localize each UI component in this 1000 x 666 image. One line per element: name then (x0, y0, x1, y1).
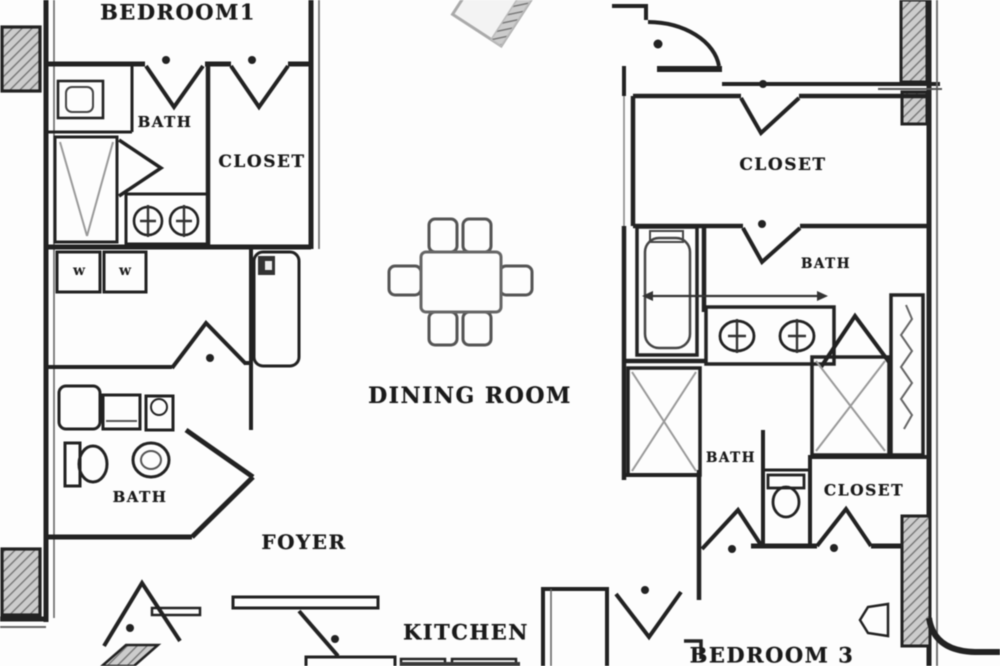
left-unit (0, 0, 319, 666)
shower-glass-marks (816, 361, 885, 451)
bath2-angled-wall-upper (186, 430, 253, 477)
dining-chair (429, 312, 457, 345)
entry-curve-wall (929, 618, 1000, 652)
room-label-closet-lower-right: CLOSET (824, 481, 904, 500)
room-label-bath-right-upper: BATH (801, 256, 851, 272)
floor-plan-linework (0, 0, 1000, 666)
pedestal-sink (133, 443, 169, 477)
dining-chair (463, 219, 491, 252)
toilet-bowl (66, 87, 93, 112)
floor-plan: BEDROOM1 BATH CLOSET DINING ROOM CLOSET … (0, 0, 1000, 666)
room-label-bath-top-left: BATH (138, 113, 193, 131)
entry-wall-stub (612, 6, 646, 20)
dining-set (389, 0, 551, 345)
door-hinge-dot (126, 624, 134, 632)
room-label-closet-top-left: CLOSET (218, 152, 305, 172)
washer-glyph: w (73, 263, 85, 279)
bedroom3-door-swing-left (702, 510, 761, 549)
bath2-cabinet (103, 395, 140, 429)
bath2-north-wall (46, 363, 253, 367)
shower-glass-marks (60, 142, 113, 236)
hatched-wall-right-top (901, 0, 927, 82)
dining-table (421, 252, 501, 312)
vanity-counter (126, 194, 208, 244)
door-hinge-dot (248, 56, 256, 64)
room-label-kitchen: KITCHEN (403, 620, 529, 645)
pedestal-sink-basin (141, 451, 161, 469)
hatched-step (102, 645, 158, 666)
hatched-column-top-left (2, 27, 40, 91)
toilet-bowl (773, 487, 799, 517)
shower-glass-marks (632, 372, 696, 471)
closet2-door-swing-bottom (743, 228, 800, 262)
bedroom1-closet-door-swing (231, 66, 288, 107)
right-unit (612, 0, 1000, 666)
tilted-furniture (453, 0, 552, 46)
dining-chair (500, 266, 532, 295)
room-label-dining-room: DINING ROOM (368, 383, 572, 409)
bedroom1-bath-door-swing (146, 66, 203, 107)
dryer-glyph: w (119, 263, 131, 279)
room-label-foyer: FOYER (261, 530, 346, 554)
room-label-bath-lower-left: BATH (113, 488, 168, 506)
door-hinge-dot (830, 544, 838, 552)
room-label-bath-right-lower: BATH (706, 450, 756, 466)
door-hinge-dot (206, 354, 214, 362)
kitchen-pantry (543, 589, 607, 666)
dimension-arrowhead (642, 291, 653, 301)
sink-faucet-mark (788, 319, 806, 353)
cabinet-shelf-squiggle (901, 305, 912, 429)
floor-plan-drawing: BEDROOM1 BATH CLOSET DINING ROOM CLOSET … (0, 0, 1000, 666)
door-hinge-dot (758, 220, 766, 228)
sink-faucet-mark (728, 319, 746, 353)
bath2-fixture-knob (151, 399, 167, 415)
sink-faucet-mark (176, 205, 192, 237)
toilet-bowl (79, 446, 107, 482)
dining-chair (389, 266, 421, 295)
room-label-bedroom1: BEDROOM1 (100, 0, 256, 25)
hatched-column-bottom-left (2, 549, 40, 615)
hatched-wall-right-bottom (902, 516, 930, 646)
shower-stall (55, 137, 117, 242)
counter-edge-dark (400, 662, 520, 666)
utility-panel-window (265, 261, 272, 270)
dimension-arrowhead (817, 291, 828, 301)
kitchen-door-leaf (299, 611, 338, 656)
bedroom3-west-door-swing (616, 592, 681, 637)
closet2-door-swing-top (741, 98, 799, 133)
door-hinge-dot (331, 635, 339, 643)
bath2-fixture (146, 396, 173, 430)
dining-chair (463, 312, 491, 345)
bath1-inner-door-swing (119, 140, 161, 196)
wall-sconce (860, 604, 888, 636)
door-hinge-dot (728, 545, 736, 553)
bath2-tub (59, 386, 100, 429)
door-hinge-dot (641, 586, 649, 594)
door-hinge-dot (162, 56, 170, 64)
room-label-closet-top-right: CLOSET (739, 155, 826, 175)
door-hinge-dot (654, 40, 663, 49)
door-hinge-dot (759, 80, 767, 88)
kitchen-counter (306, 657, 395, 666)
kitchen-counter-bar (233, 597, 378, 608)
sink-faucet-mark (140, 205, 156, 237)
bathtub-faucet (650, 231, 683, 242)
room-label-bedroom3: BEDROOM 3 (690, 643, 855, 666)
bath-door-swing (821, 316, 889, 367)
bedroom3-door-swing-right (817, 509, 871, 546)
dining-chair (429, 219, 457, 252)
bath2-angled-wall-lower (192, 477, 253, 537)
